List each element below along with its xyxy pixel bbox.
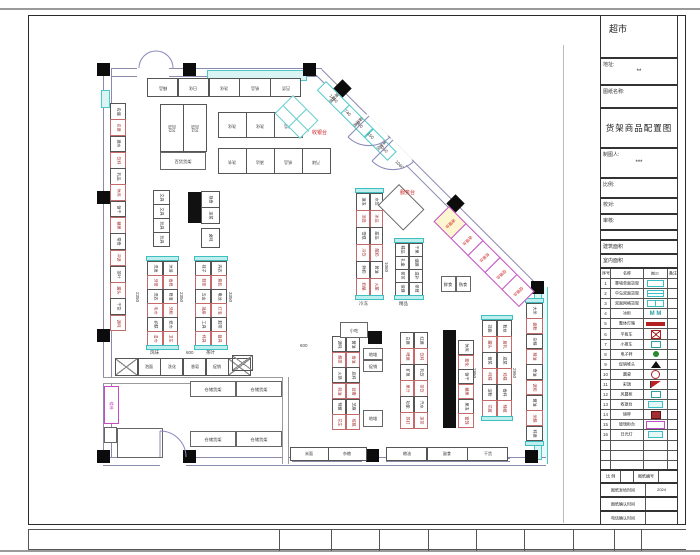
legend-row: 13收银台	[601, 400, 677, 410]
address-value: **	[601, 59, 677, 84]
building-area-label: 建筑面积	[603, 243, 623, 250]
legend-name: 风幕柜	[611, 390, 644, 399]
titleblock-scale-number-row: 比 例 图纸编号	[600, 470, 678, 483]
titleblock-building-area: 建筑面积	[600, 240, 678, 254]
legend-m-icon: M M	[650, 311, 662, 317]
bottom-number-label: 图纸编号	[634, 471, 659, 482]
legend-name: 磅秤	[611, 410, 644, 419]
legend-remark	[668, 279, 677, 288]
legend-symbol	[644, 289, 668, 298]
legend-remark	[668, 430, 677, 439]
legend-remark	[668, 350, 677, 359]
door-arcs	[0, 0, 700, 555]
confirm-label: 图纸确认时间	[601, 498, 646, 510]
legend-remark	[668, 461, 677, 470]
legend-symbol	[644, 410, 668, 419]
titleblock-confirm-row: 图纸确认时间	[600, 497, 678, 511]
legend-tealsm-icon	[651, 391, 661, 398]
legend-remark	[668, 380, 677, 389]
legend-no: 7	[601, 340, 611, 349]
legend-remark	[668, 360, 677, 369]
legend-remark	[668, 370, 677, 379]
legend-name: 电子秤	[611, 350, 644, 359]
legend-no: 11	[601, 380, 611, 389]
drawing-name-label: 图纸名称:	[603, 88, 624, 95]
legend-symbol: M M	[644, 309, 668, 318]
legend-row: 3双面网格货架	[601, 299, 677, 309]
legend-no: 6	[601, 329, 611, 338]
legend-symbol	[644, 420, 668, 429]
legend-mag-icon	[646, 421, 665, 429]
legend-no: 16	[601, 430, 611, 439]
legend-remark	[668, 329, 677, 338]
legend-cyangrid-icon	[647, 300, 664, 307]
titleblock-scale: 比例:	[600, 178, 678, 198]
legend-no	[601, 441, 611, 450]
audit-label: 审核:	[603, 217, 614, 224]
legend-name: 日光灯	[611, 430, 644, 439]
bottom-scale-label: 比 例	[601, 471, 621, 482]
legend-redx-icon	[651, 330, 661, 339]
legend-no: 13	[601, 400, 611, 409]
legend-symbol	[644, 441, 668, 450]
legend-name: 整体灯箱	[611, 319, 644, 328]
bottom-number-value	[659, 471, 677, 482]
titleblock-blank-row	[600, 230, 678, 240]
legend-header-cell: 图示	[644, 269, 668, 278]
legend-no: 3	[601, 299, 611, 308]
legend-no: 10	[601, 370, 611, 379]
issue-value: 2024	[646, 484, 677, 496]
legend-row: 15玻璃柜台	[601, 420, 677, 430]
legend-no: 12	[601, 390, 611, 399]
entrance-door-arc-left	[139, 51, 156, 68]
legend-row: 9促销堆头	[601, 360, 677, 370]
legend-cyanbox-icon	[648, 401, 663, 408]
legend-table: 序号名称图示备注1靠墙单面货架2中岛双面货架3双面网格货架4冰柜M M5整体灯箱…	[600, 268, 678, 470]
legend-no: 9	[601, 360, 611, 369]
legend-no: 15	[601, 420, 611, 429]
legend-symbol	[644, 319, 668, 328]
legend-row: 11彩旗	[601, 380, 677, 390]
legend-row: 4冰柜M M	[601, 309, 677, 319]
phone-label: 电话确认时间	[601, 512, 646, 524]
titleblock-drafter: 制图人: ***	[600, 148, 678, 178]
legend-cyanopen-icon	[647, 280, 664, 287]
legend-row: 5整体灯箱	[601, 319, 677, 329]
titleblock-check: 校对:	[600, 198, 678, 214]
issue-label: 图纸发给时间	[601, 484, 646, 496]
legend-name: 小推车	[611, 340, 644, 349]
legend-symbol	[644, 329, 668, 338]
legend-symbol	[644, 451, 668, 460]
legend-name: 玻璃柜台	[611, 420, 644, 429]
legend-no: 5	[601, 319, 611, 328]
legend-brown-icon	[651, 411, 661, 419]
legend-remark	[668, 410, 677, 419]
legend-no: 1	[601, 279, 611, 288]
titleblock-store-name: 超市	[600, 15, 678, 58]
legend-flag-icon	[650, 381, 661, 388]
legend-symbol	[644, 430, 668, 439]
legend-tealsm-icon	[651, 341, 661, 348]
entrance-door-arc-right	[156, 51, 173, 68]
legend-symbol	[644, 279, 668, 288]
drafter-value: ***	[601, 149, 677, 177]
legend-remark	[668, 319, 677, 328]
indoor-area-label: 室内面积	[603, 257, 623, 264]
titleblock-indoor-area: 室内面积	[600, 254, 678, 268]
diagonal-door-arc-1	[348, 116, 390, 146]
legend-redbar-icon	[646, 322, 665, 326]
legend-name: 彩旗	[611, 380, 644, 389]
titleblock-phone-row: 电话确认时间	[600, 511, 678, 525]
legend-name: 平板车	[611, 329, 644, 338]
drawing-title-text: 货架商品配置图	[601, 109, 677, 147]
legend-row	[601, 441, 677, 451]
legend-symbol	[644, 350, 668, 359]
legend-name: 冰柜	[611, 309, 644, 318]
store-name-text: 超市	[609, 24, 627, 34]
legend-green-icon	[653, 351, 659, 357]
legend-header-cell: 序号	[601, 269, 611, 278]
storage-door-arc	[160, 431, 186, 457]
legend-circ-icon	[651, 370, 660, 379]
scale-label: 比例:	[603, 181, 614, 188]
confirm-value	[646, 498, 677, 510]
check-label: 校对:	[603, 201, 614, 208]
legend-row	[601, 451, 677, 461]
legend-header-cell: 名称	[611, 269, 644, 278]
legend-symbol	[644, 340, 668, 349]
legend-no	[601, 451, 611, 460]
legend-row: 6平板车	[601, 329, 677, 339]
legend-name: 双面网格货架	[611, 299, 644, 308]
legend-name: 促销堆头	[611, 360, 644, 369]
legend-cyanbox-icon	[648, 431, 663, 438]
legend-name	[611, 461, 644, 470]
legend-no: 8	[601, 350, 611, 359]
legend-remark	[668, 441, 677, 450]
legend-header-row: 序号名称图示备注	[601, 269, 677, 279]
legend-no: 4	[601, 309, 611, 318]
titleblock-drawing-title: 货架商品配置图	[600, 108, 678, 148]
bottom-scale-value	[621, 471, 635, 482]
legend-symbol	[644, 400, 668, 409]
legend-name: 中岛双面货架	[611, 289, 644, 298]
legend-symbol	[644, 380, 668, 389]
legend-symbol	[644, 299, 668, 308]
legend-row: 8电子秤	[601, 350, 677, 360]
legend-row: 16日光灯	[601, 430, 677, 440]
legend-cyanrect-icon	[647, 290, 664, 297]
legend-symbol	[644, 370, 668, 379]
legend-remark	[668, 289, 677, 298]
legend-header-cell: 备注	[668, 269, 677, 278]
legend-name	[611, 451, 644, 460]
legend-remark	[668, 400, 677, 409]
legend-symbol	[644, 390, 668, 399]
legend-symbol	[644, 461, 668, 470]
legend-symbol	[644, 360, 668, 369]
legend-name: 圆桌	[611, 370, 644, 379]
legend-no	[601, 461, 611, 470]
legend-name: 靠墙单面货架	[611, 279, 644, 288]
phone-value	[646, 512, 677, 524]
legend-row: 14磅秤	[601, 410, 677, 420]
legend-remark	[668, 390, 677, 399]
legend-row: 7小推车	[601, 340, 677, 350]
legend-row	[601, 461, 677, 470]
titleblock-address: 地址: **	[600, 58, 678, 85]
legend-no: 14	[601, 410, 611, 419]
legend-row: 12风幕柜	[601, 390, 677, 400]
titleblock-issue-row: 图纸发给时间 2024	[600, 483, 678, 497]
legend-remark	[668, 340, 677, 349]
legend-row: 1靠墙单面货架	[601, 279, 677, 289]
legend-name	[611, 441, 644, 450]
legend-remark	[668, 420, 677, 429]
legend-name: 收银台	[611, 400, 644, 409]
legend-remark	[668, 451, 677, 460]
titleblock-drawing-name: 图纸名称:	[600, 85, 678, 108]
legend-no: 2	[601, 289, 611, 298]
drawing-sheet: 名烟名酒酒水饮料乳品休闲饼干糖果零食冲调茶叶罐头干货调味精品日化洗化纸品百货91…	[0, 0, 700, 555]
legend-tri-icon	[651, 361, 661, 368]
legend-row: 10圆桌	[601, 370, 677, 380]
legend-row: 2中岛双面货架	[601, 289, 677, 299]
titleblock-audit: 审核:	[600, 214, 678, 230]
legend-remark	[668, 299, 677, 308]
legend-remark	[668, 309, 677, 318]
